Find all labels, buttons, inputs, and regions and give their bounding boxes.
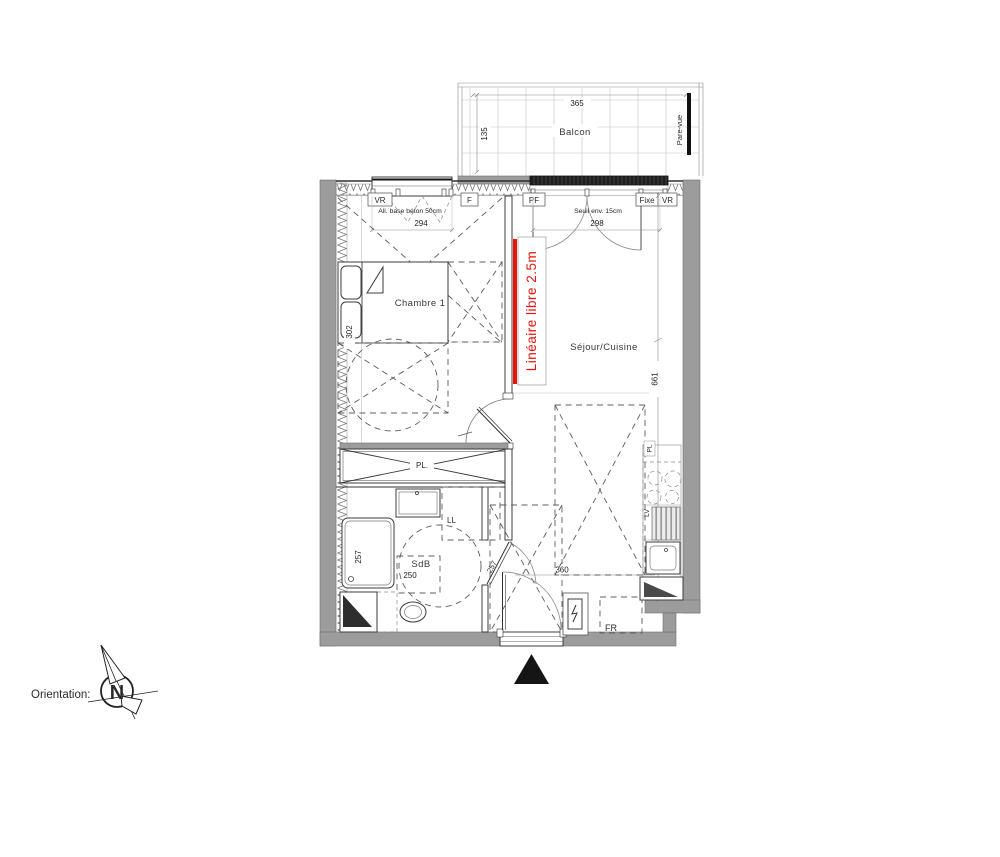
shower-dim: 257	[354, 550, 363, 564]
washing-machine-zone	[442, 487, 500, 540]
window-living-tag-pf: PF	[529, 196, 539, 205]
north-compass-icon: N	[88, 645, 158, 719]
balcony-dim-135: 135	[475, 93, 490, 174]
bedroom-door-leaf	[477, 409, 510, 443]
window-bedroom-tag-f: F	[467, 196, 472, 205]
pare-vue-screen	[687, 93, 691, 155]
balcony-depth-dim: 135	[480, 127, 489, 141]
hall: 360 FR	[490, 505, 655, 646]
compass-north-letter: N	[110, 682, 124, 704]
living-length-dim: 661	[651, 372, 660, 386]
bathroom-label: SdB	[411, 559, 430, 570]
kitchen-counter: PL LV	[640, 441, 683, 600]
orientation-label: Orientation:	[31, 689, 90, 701]
wall-step	[645, 600, 700, 613]
window-bedroom-note: All. base béton 50cm	[378, 208, 442, 215]
bedroom-label: Chambre 1	[395, 298, 446, 309]
partition-bedroom-living	[458, 196, 513, 449]
window-living-tag-vr: VR	[662, 196, 673, 205]
window-bedroom-dim: 294	[414, 219, 428, 228]
balcony: 365 135 Balcon Pare-vue	[458, 83, 703, 176]
bathroom-width-dim: 250	[403, 571, 417, 580]
entrance-arrow-icon	[514, 654, 549, 684]
orientation: Orientation: N	[31, 645, 158, 719]
window-living-dim: 298	[590, 219, 604, 228]
balcony-width-dim: 365	[570, 99, 584, 108]
wall-bottom-left	[320, 632, 500, 646]
pare-vue-label: Pare-vue	[675, 115, 684, 145]
closet: PL.	[336, 443, 512, 487]
counter-end	[640, 577, 683, 600]
electric-panel	[563, 593, 588, 635]
living-width-dim: 360	[555, 566, 569, 575]
fridge-label: FR	[605, 623, 617, 633]
living-length-dim-line: 661	[649, 194, 662, 602]
balcony-label: Balcon	[559, 127, 590, 138]
window-living-tag-fixe: Fixe	[639, 196, 655, 205]
kitchen-tall-unit-label: PL	[647, 444, 654, 452]
pillow	[341, 266, 361, 299]
washing-machine-label: LL	[447, 516, 456, 525]
floor-plan-canvas: 365 135 Balcon Pare-vue	[0, 0, 1000, 857]
duct	[340, 592, 377, 632]
sink	[646, 542, 680, 574]
shower: 257	[342, 518, 394, 588]
linear-free-label: Linéaire libre 2.5m	[524, 251, 539, 372]
closet-label: PL.	[416, 461, 428, 470]
balcony-dim-365: 365	[471, 93, 688, 108]
window-bedroom-tag-vr: VR	[374, 196, 385, 205]
linear-free-annotation: Linéaire libre 2.5m	[513, 237, 546, 385]
entry-door	[497, 572, 566, 646]
linear-free-bar	[513, 239, 517, 384]
window-living-note: Seuil env. 15cm	[574, 208, 622, 215]
room-bedroom: Chambre 1 302	[337, 196, 502, 443]
turning-circle	[346, 339, 438, 431]
floor-plan-drawing: 365 135 Balcon Pare-vue	[0, 0, 1000, 857]
bedroom-depth-dim: 302	[345, 325, 354, 339]
washbasin	[396, 489, 440, 517]
cooktop	[647, 471, 681, 504]
dishwasher	[652, 507, 680, 540]
living-label: Séjour/Cuisine	[570, 342, 637, 353]
wall-left	[320, 180, 336, 646]
wall-right	[683, 180, 700, 613]
dishwasher-label: LV	[644, 509, 651, 517]
toilet	[377, 592, 426, 632]
